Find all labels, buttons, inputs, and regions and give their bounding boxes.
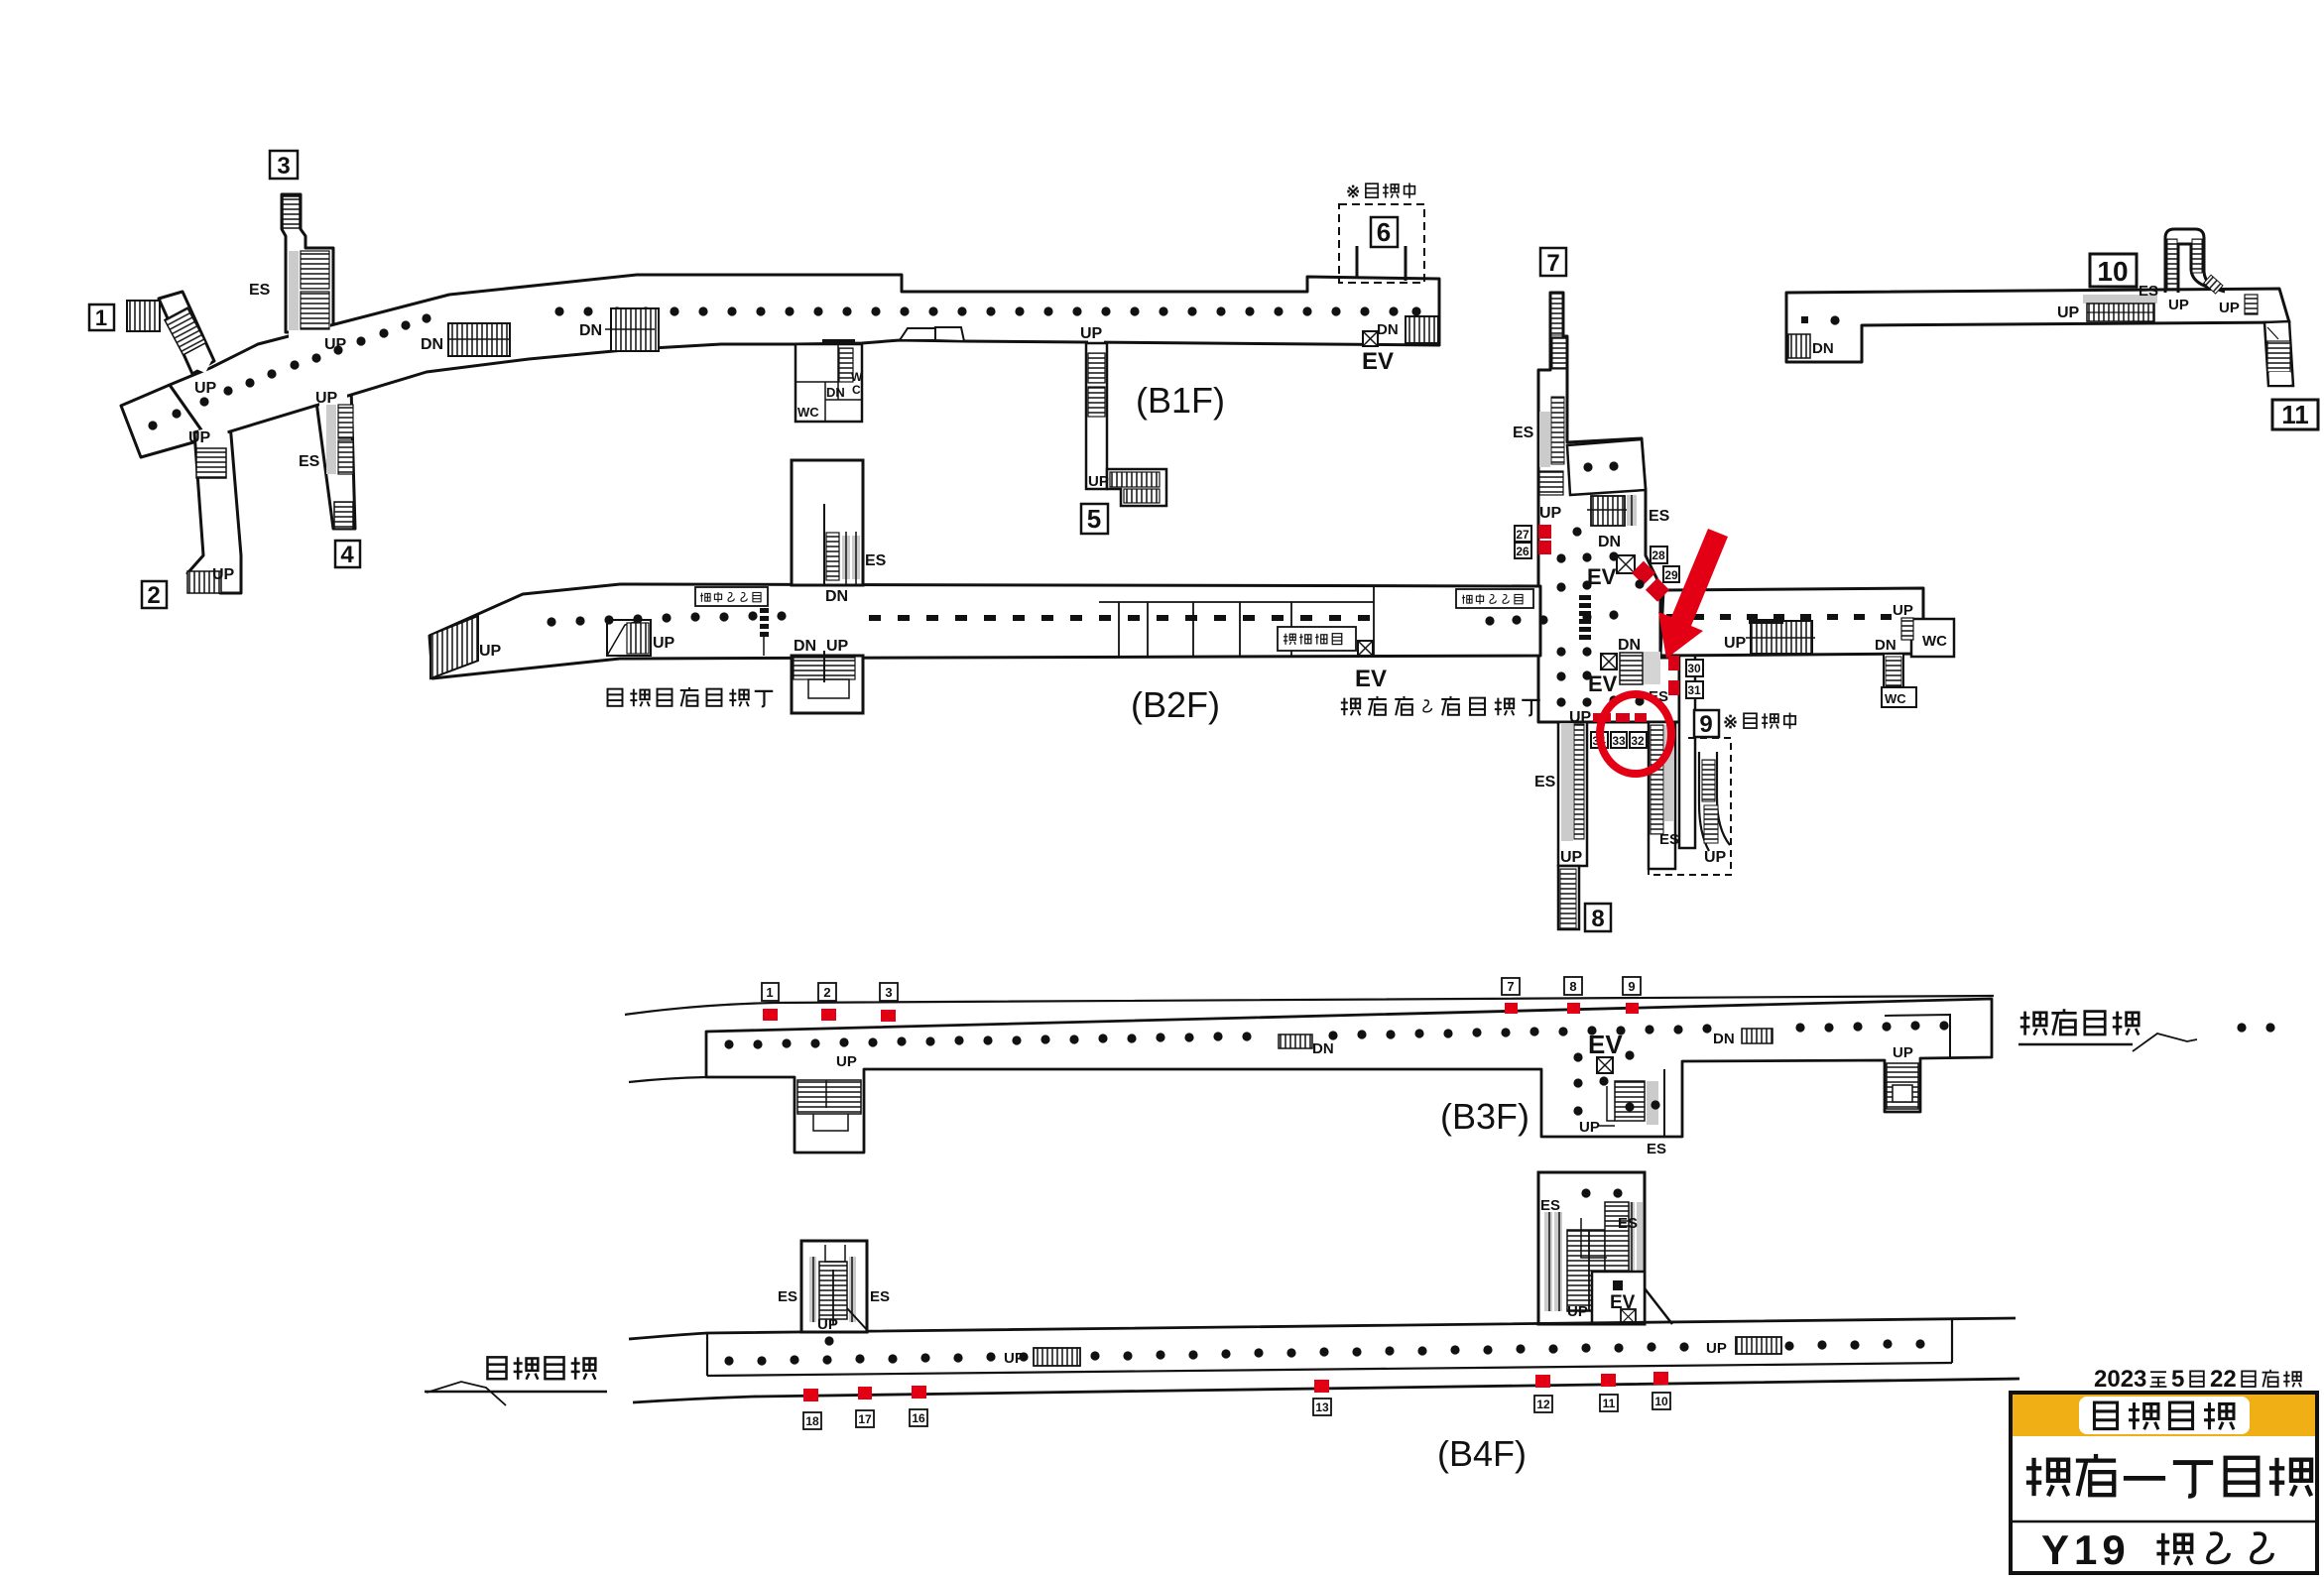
svg-text:UP: UP (1088, 473, 1109, 490)
svg-text:7: 7 (1507, 979, 1514, 994)
svg-text:DN: DN (579, 322, 602, 339)
svg-text:UP: UP (817, 1316, 838, 1333)
svg-text:ES: ES (1659, 831, 1679, 848)
svg-text:EV: EV (1355, 666, 1387, 692)
svg-text:DN: DN (825, 588, 848, 605)
svg-text:ES: ES (249, 282, 271, 299)
svg-text:22: 22 (2210, 1366, 2237, 1393)
svg-text:UP: UP (1704, 849, 1727, 866)
svg-text:(B4F): (B4F) (1437, 1433, 1527, 1474)
svg-text:2: 2 (823, 985, 830, 1000)
svg-text:30: 30 (1687, 662, 1701, 675)
svg-text:Y19: Y19 (2041, 1526, 2131, 1573)
svg-text:12: 12 (1536, 1398, 1550, 1411)
svg-text:28: 28 (1651, 548, 1665, 562)
svg-text:DN: DN (794, 638, 816, 655)
svg-text:ES: ES (1647, 1141, 1666, 1157)
svg-text:8: 8 (1591, 906, 1604, 932)
svg-text:DN: DN (1618, 637, 1641, 654)
svg-text:DN: DN (1812, 340, 1834, 357)
svg-text:EV: EV (1588, 671, 1618, 696)
svg-text:DN: DN (1598, 534, 1621, 550)
svg-text:ES: ES (1513, 425, 1534, 441)
svg-text:5: 5 (2171, 1366, 2184, 1393)
svg-text:11: 11 (1603, 1397, 1616, 1410)
svg-text:ES: ES (299, 453, 320, 470)
svg-text:(B1F): (B1F) (1136, 380, 1225, 421)
svg-text:26: 26 (1516, 545, 1529, 558)
svg-text:8: 8 (1569, 979, 1576, 994)
svg-text:13: 13 (1315, 1400, 1329, 1414)
svg-text:UP: UP (826, 638, 849, 655)
svg-text:6: 6 (1377, 217, 1391, 247)
svg-text:9: 9 (1628, 979, 1635, 994)
svg-text:10: 10 (1654, 1395, 1668, 1408)
svg-text:UP: UP (1706, 1340, 1727, 1357)
svg-text:17: 17 (858, 1412, 872, 1426)
svg-text:31: 31 (1687, 683, 1701, 697)
svg-text:DN: DN (826, 385, 845, 400)
svg-text:ES: ES (778, 1288, 797, 1305)
svg-text:EV: EV (1362, 348, 1394, 375)
svg-text:WC: WC (1922, 633, 1947, 650)
svg-text:UP: UP (2168, 297, 2189, 313)
svg-text:WC: WC (797, 405, 819, 420)
svg-text:9: 9 (1699, 711, 1712, 738)
svg-text:UP: UP (653, 635, 675, 652)
svg-text:UP: UP (315, 390, 338, 407)
svg-text:UP: UP (1539, 505, 1562, 522)
svg-text:10: 10 (2097, 256, 2128, 287)
svg-text:(B3F): (B3F) (1440, 1096, 1529, 1137)
svg-text:7: 7 (1546, 250, 1559, 277)
svg-text:UP: UP (1579, 1119, 1600, 1136)
svg-text:UP: UP (194, 380, 217, 397)
svg-text:16: 16 (912, 1411, 925, 1425)
svg-text:11: 11 (2281, 400, 2309, 429)
svg-text:DN: DN (421, 336, 443, 353)
svg-text:ES: ES (1649, 508, 1670, 525)
svg-text:UP: UP (2057, 304, 2080, 321)
svg-text:UP: UP (479, 643, 502, 660)
svg-text:UP: UP (2219, 300, 2240, 316)
svg-text:32: 32 (1631, 734, 1645, 748)
svg-text:33: 33 (1612, 734, 1626, 748)
svg-text:UP: UP (1560, 849, 1583, 866)
svg-text:UP: UP (1080, 325, 1103, 342)
svg-text:W: W (851, 370, 863, 384)
svg-text:3: 3 (885, 985, 892, 1000)
svg-text:UP: UP (836, 1053, 857, 1070)
svg-text:1: 1 (95, 305, 107, 330)
svg-text:UP: UP (1567, 1303, 1588, 1320)
svg-text:(B2F): (B2F) (1131, 684, 1220, 725)
svg-text:2: 2 (147, 582, 160, 609)
svg-text:DN: DN (1312, 1040, 1334, 1057)
svg-text:DN: DN (1713, 1031, 1735, 1047)
svg-text:UP: UP (212, 566, 235, 583)
svg-text:※: ※ (1346, 183, 1360, 201)
svg-text:※: ※ (1723, 712, 1738, 732)
svg-text:WC: WC (1885, 691, 1906, 706)
svg-text:DN: DN (1875, 637, 1896, 654)
svg-text:UP: UP (1893, 1044, 1913, 1061)
svg-text:ES: ES (1540, 1197, 1560, 1214)
svg-text:3: 3 (277, 153, 290, 180)
svg-text:UP: UP (1724, 635, 1747, 652)
svg-text:ES: ES (2139, 283, 2158, 300)
svg-text:27: 27 (1516, 528, 1529, 542)
svg-text:ES: ES (1534, 774, 1556, 791)
svg-text:UP: UP (188, 429, 211, 446)
svg-text:18: 18 (805, 1414, 819, 1428)
svg-text:4: 4 (340, 542, 354, 568)
svg-text:5: 5 (1087, 504, 1101, 534)
svg-text:DN: DN (1377, 321, 1399, 338)
svg-text:UP: UP (1893, 602, 1913, 619)
svg-text:ES: ES (1618, 1215, 1638, 1232)
svg-text:C: C (852, 383, 861, 397)
svg-text:1: 1 (766, 985, 773, 1000)
svg-text:2023: 2023 (2094, 1366, 2146, 1393)
svg-text:ES: ES (870, 1288, 890, 1305)
svg-text:ES: ES (865, 552, 887, 569)
svg-text:29: 29 (1664, 568, 1678, 582)
